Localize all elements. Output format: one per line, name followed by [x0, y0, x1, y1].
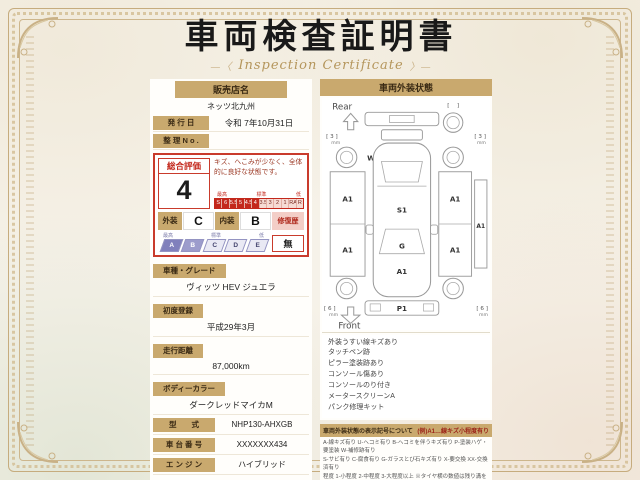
front-right-wheel — [443, 278, 463, 298]
evaluation-comment: キズ、へこみが少なく、全体的に良好な状態です。 — [214, 158, 304, 178]
lace-decoration-right — [606, 34, 614, 446]
model-code-row: 型 式 NHP130-AHXGB — [153, 415, 309, 435]
marker-a1-right-quarter: A1 — [476, 223, 485, 230]
legend-line: 程度 1-小程度 2-中程度 3-大程度以上 ※タイヤ横の数値は残り溝を表示して… — [323, 473, 489, 480]
marker-a1-right-front-door: A1 — [450, 246, 461, 255]
scale-cell: 3.5 — [260, 199, 267, 208]
marker-a1-right-rear-door: A1 — [450, 195, 461, 204]
scale-cell: RA — [289, 199, 296, 208]
ref-no-label: 整 理 N o . — [153, 134, 209, 148]
chassis-no-label: 車 台 番 号 — [153, 438, 215, 452]
grade-scale-mid-label: 標準 — [211, 232, 221, 239]
engine-row: エ ン ジ ン ハイブリッド — [153, 455, 309, 475]
rear-left-tread: [ 3 ] — [326, 134, 338, 140]
issue-date-label: 発 行 日 — [153, 116, 209, 130]
chassis-no-value: XXXXXXX434 — [215, 440, 309, 449]
marker-a1-left-front-door: A1 — [342, 246, 353, 255]
overall-evaluation-box: 総合評価 4 キズ、へこみが少なく、全体的に良好な状態です。 最高 標準 低 — [153, 153, 309, 257]
svg-text:mm: mm — [331, 141, 340, 146]
mileage-row: 走行距離 87,000km — [153, 337, 309, 375]
front-label: Front — [338, 322, 361, 330]
spare-tire-tread: [ ] — [447, 103, 459, 109]
front-left-tread: [ 6 ] — [324, 306, 336, 312]
grade-cell-e: E — [245, 239, 269, 252]
rear-arrow-icon — [344, 113, 358, 129]
exterior-condition-column: 車両外装状態 Rear [ ] — [320, 79, 492, 480]
note-item: コンソールのり付き — [328, 381, 484, 392]
svg-text:mm: mm — [477, 141, 486, 146]
model-grade-value: ヴィッツ HEV ジュエラ — [153, 281, 309, 293]
scale-cell: 2 — [274, 199, 281, 208]
note-item: パンク修理キット — [328, 403, 484, 414]
svg-text:mm: mm — [329, 313, 338, 318]
note-item: ピラー塗装跡あり — [328, 359, 484, 370]
car-damage-diagram: Rear [ ] [ 3 ] mm — [322, 98, 490, 330]
marker-g-glass: G — [399, 242, 405, 251]
engine-value: ハイブリッド — [215, 459, 309, 470]
first-registration-label: 初度登録 — [153, 304, 203, 318]
repair-history-label: 修復歴 — [272, 212, 304, 230]
scale-mid-label: 標準 — [256, 191, 266, 198]
note-item: メータースクリーンA — [328, 392, 484, 403]
grade-scale: 最高 標準 低 A B C D E — [158, 232, 269, 252]
chassis-no-row: 車 台 番 号 XXXXXXX434 — [153, 435, 309, 455]
grade-scale-high-label: 最高 — [163, 232, 173, 239]
dealer-label: 販売店名 — [175, 81, 287, 98]
exterior-label: 外装 — [158, 212, 182, 230]
lace-decoration-left — [26, 34, 34, 446]
scale-cell: 5.5 — [230, 199, 237, 208]
marker-a1-hood: A1 — [397, 267, 408, 276]
exterior-notes-list: 外装うすい線キズあり タッチペン跡 ピラー塗装跡あり コンソール傷あり コンソー… — [322, 335, 490, 418]
scale-cell: 1 — [282, 199, 289, 208]
body-color-label: ボディーカラー — [153, 382, 225, 396]
grade-cell-b: B — [181, 239, 205, 252]
note-item: 外装うすい線キズあり — [328, 338, 484, 349]
marker-s1-roof: S1 — [397, 206, 407, 215]
exterior-condition-header: 車両外装状態 — [320, 79, 492, 96]
issue-date-value: 令和 7年10月31日 — [209, 117, 309, 129]
legend-line: A-線キズ有り U-ヘコミ有り B-ヘコミを伴うキズ有り P-塗装ハゲ・要塗装 … — [323, 439, 489, 456]
model-code-label: 型 式 — [153, 418, 215, 432]
front-right-tread: [ 6 ] — [476, 306, 488, 312]
overall-score-cell: 総合評価 4 — [158, 158, 210, 209]
rear-right-wheel — [443, 147, 463, 167]
rear-label: Rear — [332, 102, 352, 112]
marker-a1-left-rear-door: A1 — [342, 195, 353, 204]
scale-low-label: 低 — [296, 191, 301, 198]
scale-cell: R — [297, 199, 303, 208]
interior-grade: B — [240, 212, 271, 230]
body-color-row: ボディーカラー ダークレッドマイカM — [153, 375, 309, 415]
overall-evaluation-label: 総合評価 — [159, 159, 209, 174]
symbol-legend: 車両外装状態の表示記号について (例)A1…線キズ小程度有り A-線キズ有り U… — [320, 424, 492, 480]
scale-cell: 4.5 — [245, 199, 252, 208]
corner-flourish-icon — [580, 14, 626, 60]
scale-cell: 6 — [222, 199, 229, 208]
scale-cell: 3 — [267, 199, 274, 208]
grade-cell-c: C — [202, 239, 226, 252]
scale-high-label: 最高 — [217, 191, 227, 198]
note-item: コンソール傷あり — [328, 370, 484, 381]
inspection-certificate: 車両検査証明書 Inspection Certificate 販売店名 ネッツ北… — [0, 0, 640, 480]
model-code-value: NHP130-AHXGB — [215, 420, 309, 429]
interior-label: 内装 — [215, 212, 239, 230]
score-scale: 最高 標準 低 S 6 5.5 5 4.5 — [214, 189, 304, 209]
rear-left-wheel — [336, 147, 356, 167]
rear-right-tread: [ 3 ] — [474, 134, 486, 140]
vehicle-info-column: 販売店名 ネッツ北九州 発 行 日 令和 7年10月31日 整 理 N o . … — [150, 79, 312, 480]
marker-p1-front-bumper: P1 — [397, 304, 407, 313]
scale-cell: S — [215, 199, 222, 208]
ref-no-row: 整 理 N o . — [153, 132, 309, 150]
corner-flourish-icon — [14, 420, 60, 466]
model-grade-label: 車種・グレード — [153, 264, 226, 278]
front-left-wheel — [336, 278, 356, 298]
certificate-subtitle: Inspection Certificate — [150, 58, 492, 73]
corner-flourish-icon — [14, 14, 60, 60]
spare-tire — [443, 113, 462, 132]
mileage-label: 走行距離 — [153, 344, 203, 358]
model-grade-row: 車種・グレード ヴィッツ HEV ジュエラ — [153, 257, 309, 297]
first-registration-value: 平成29年3月 — [153, 321, 309, 333]
corner-flourish-icon — [580, 420, 626, 466]
body-color-value: ダークレッドマイカM — [153, 399, 309, 411]
engine-label: エ ン ジ ン — [153, 458, 215, 472]
legend-line: S-サビ有り C-腐食有り G-ガラスとび石キズ有り X-要交換 XX-交換済有… — [323, 456, 489, 473]
issue-date-row: 発 行 日 令和 7年10月31日 — [153, 114, 309, 132]
certificate-title: 車両検査証明書 — [150, 18, 492, 57]
dealer-name: ネッツ北九州 — [153, 101, 309, 112]
repair-history-value: 無 — [272, 235, 304, 252]
exterior-grade: C — [183, 212, 214, 230]
first-registration-row: 初度登録 平成29年3月 — [153, 297, 309, 337]
grade-scale-low-label: 低 — [259, 232, 264, 239]
svg-text:mm: mm — [479, 313, 488, 318]
overall-score: 4 — [159, 174, 209, 208]
grade-cell-d: D — [224, 239, 248, 252]
note-item: タッチペン跡 — [328, 348, 484, 359]
scale-cell-current: 4 — [252, 199, 259, 208]
scale-cell: 5 — [237, 199, 244, 208]
mileage-value: 87,000km — [153, 361, 309, 371]
legend-header: 車両外装状態の表示記号について — [323, 426, 413, 435]
legend-example: (例)A1…線キズ小程度有り — [417, 426, 489, 435]
